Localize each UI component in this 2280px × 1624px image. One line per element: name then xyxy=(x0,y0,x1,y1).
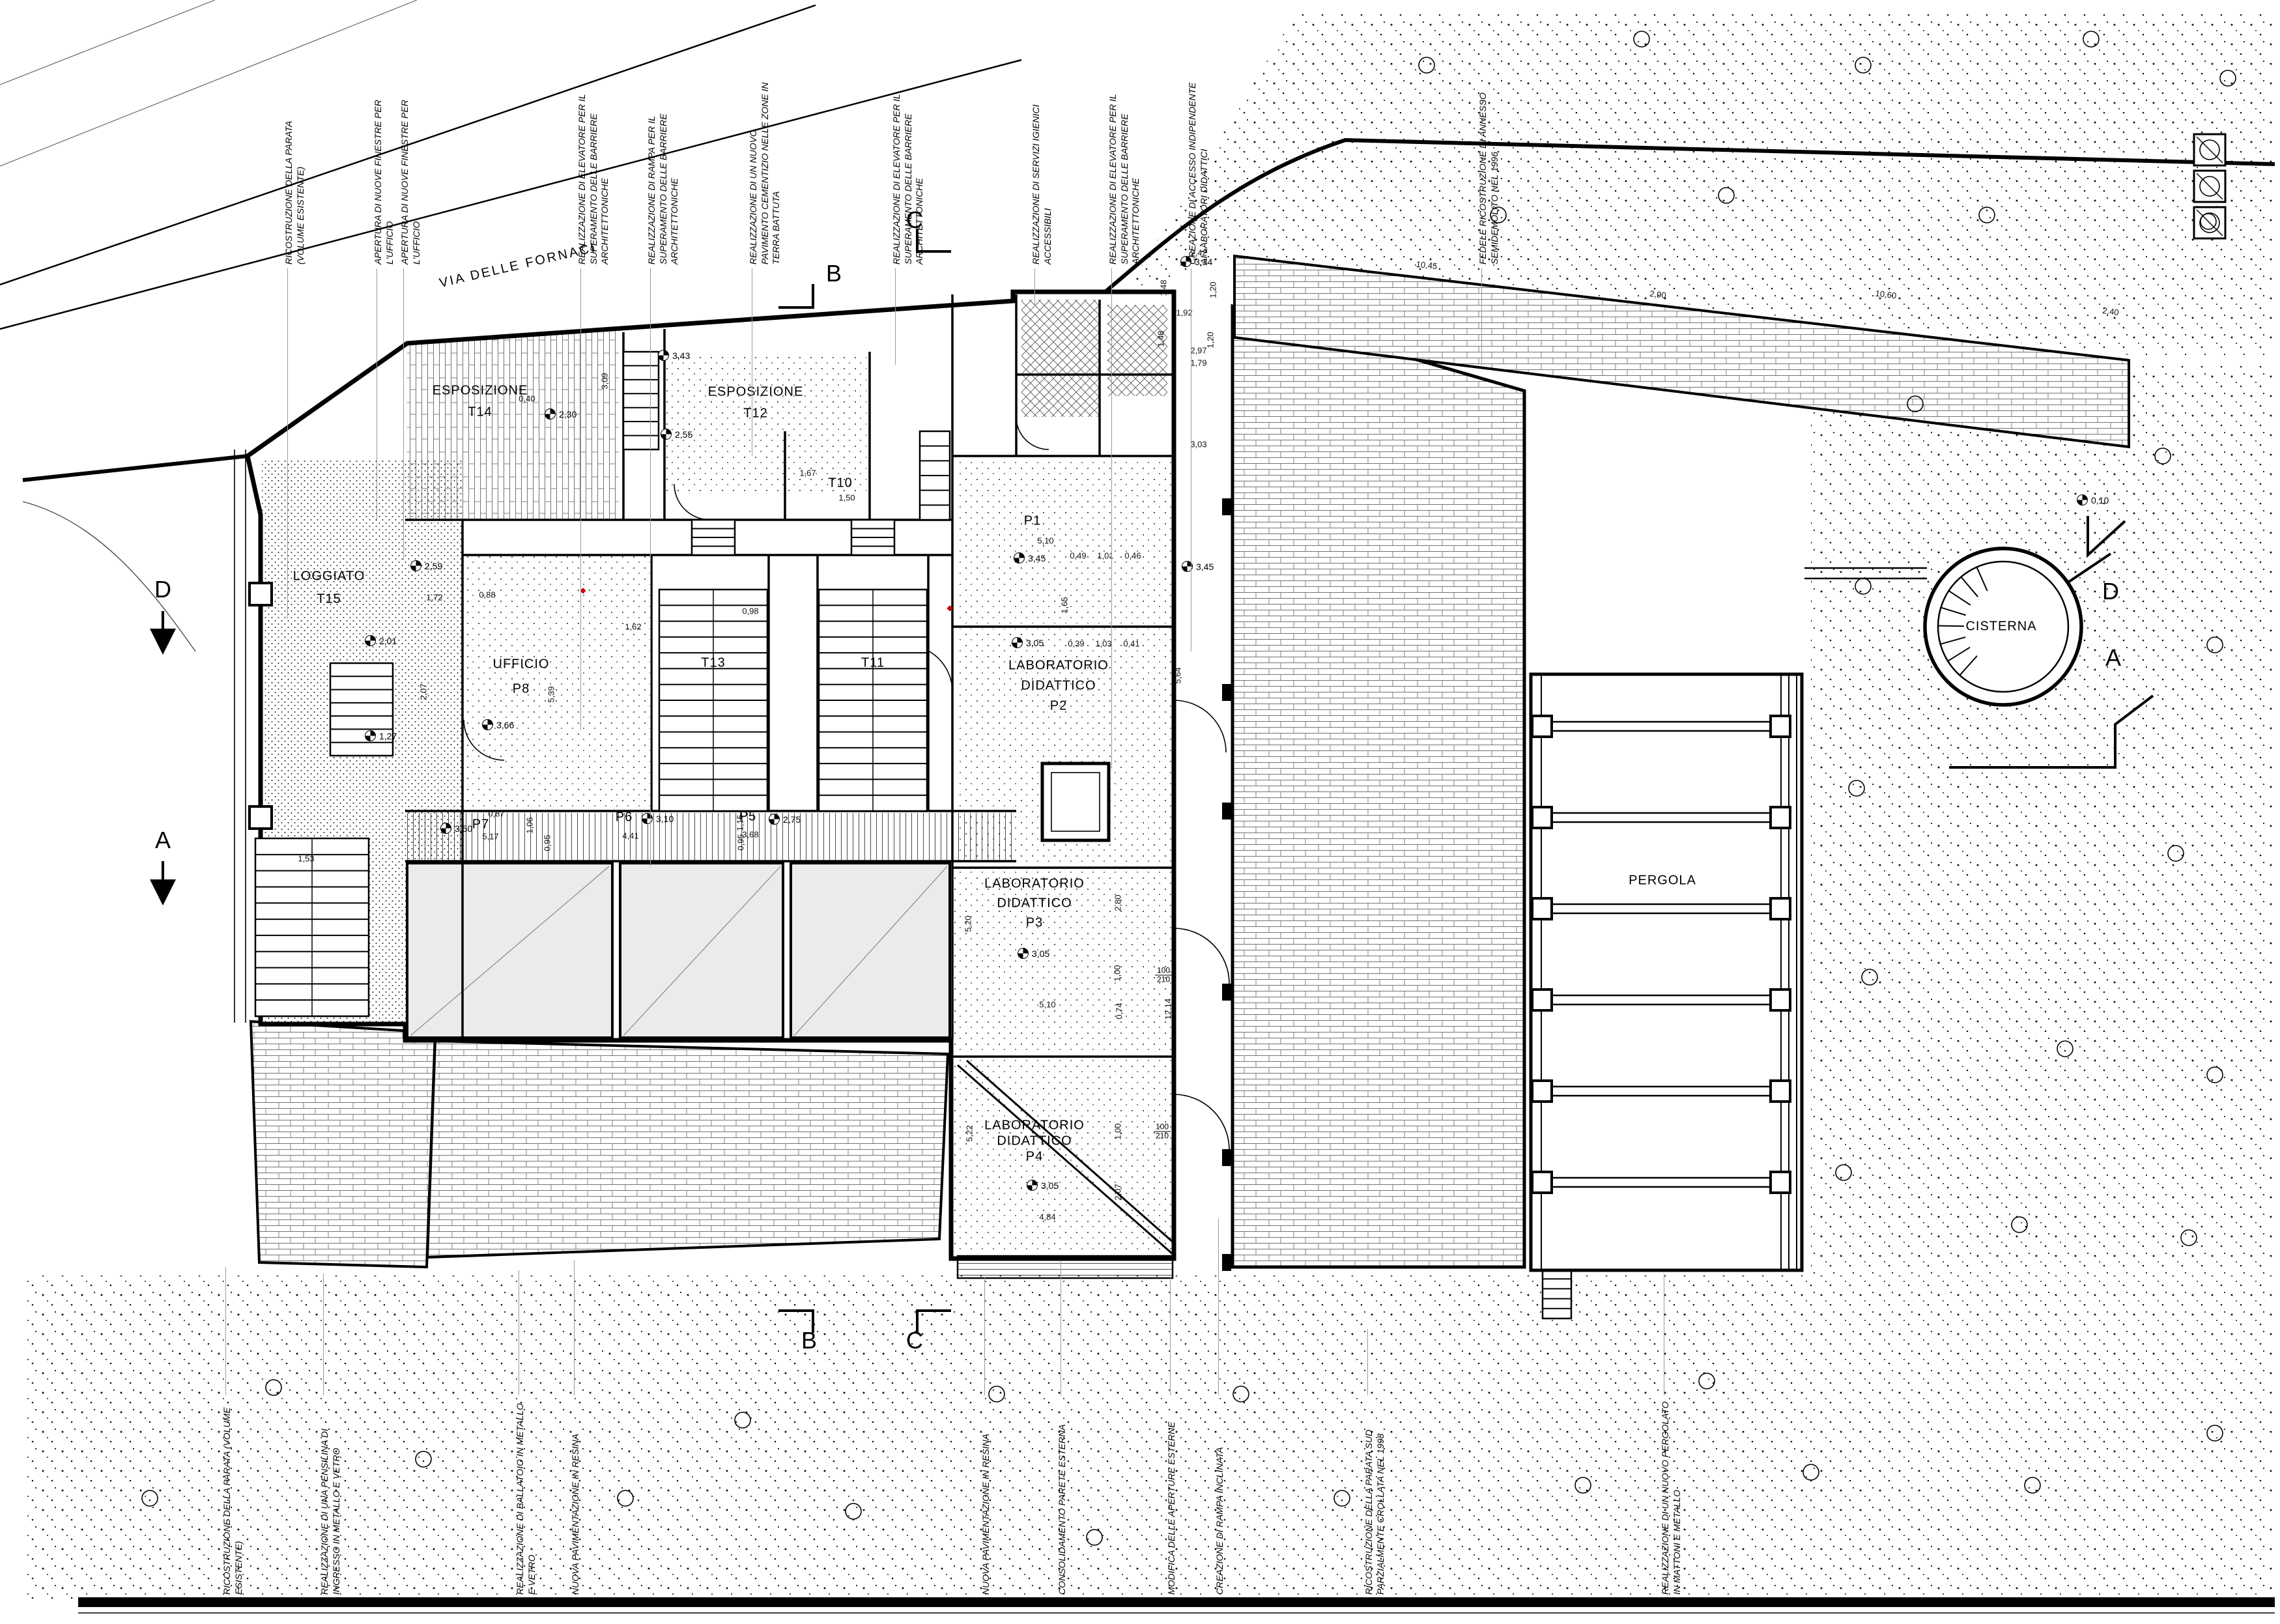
pergola-structure xyxy=(1531,674,1802,1270)
elevation-value: 3,43 xyxy=(672,350,690,361)
elevation-target-icon xyxy=(1012,637,1023,648)
elevation-value: 2,30 xyxy=(559,409,577,420)
dimension-label: 1,92 xyxy=(1176,308,1192,318)
spot-elevation: 0,10 xyxy=(2077,494,2109,506)
south-wall xyxy=(78,1597,2275,1613)
annotation-leader xyxy=(650,268,651,866)
revision-mark: ◆ xyxy=(947,603,952,612)
room-label: DIDATTICO xyxy=(1021,679,1096,694)
dimension-label: 1,00 xyxy=(1113,1123,1123,1139)
spot-elevation: 2,30 xyxy=(545,408,577,420)
door-jamb xyxy=(1222,684,1231,701)
dimension-label: 3,03 xyxy=(1190,440,1206,449)
annotation-leader xyxy=(1664,1274,1664,1395)
annotation-leader xyxy=(1218,1218,1219,1395)
annotation-callout: REALIZZAZIONE DI UNA PENSILINA DI INGRES… xyxy=(319,1399,342,1595)
elevation-target-icon xyxy=(365,635,376,646)
pergola-post xyxy=(1532,898,1552,919)
elevation-target-icon xyxy=(410,560,421,571)
dimension-label: 1,65 xyxy=(1060,597,1070,613)
elevation-value: 1,27 xyxy=(379,731,397,741)
spot-elevation: 2,75 xyxy=(769,814,801,825)
elevation-target-icon xyxy=(440,823,451,834)
annotation-callout: REALIZZAZIONE DI BALLATOIO IN METALLO E … xyxy=(515,1399,537,1595)
annotation-leader xyxy=(225,1267,226,1395)
elevation-target-icon xyxy=(365,730,376,741)
annotation-leader xyxy=(1170,1277,1171,1395)
door-size-label: 100210 xyxy=(1155,967,1172,984)
annotation-leader xyxy=(323,1274,324,1395)
spot-elevation: 3,50 xyxy=(440,823,472,834)
spot-elevation: 3,43 xyxy=(658,350,690,361)
room-label: ESPOSIZIONE xyxy=(433,384,528,399)
equipment-squares xyxy=(2194,134,2225,238)
site-plan-sheet: VIA DELLE FORNACI ESPOSIZIONET14ESPOSIZI… xyxy=(0,0,2280,1624)
road-via-delle-fornaci xyxy=(0,0,1021,329)
staircase xyxy=(623,352,659,449)
dimension-label: 3,09 xyxy=(600,373,610,389)
door-width: 100 xyxy=(1154,1123,1171,1132)
staircase xyxy=(1543,1269,1571,1318)
annotation-leader xyxy=(519,1270,519,1395)
annotation-leader xyxy=(1367,1329,1368,1395)
section-marker-d: D xyxy=(2102,578,2119,605)
section-marker-b: B xyxy=(801,1327,817,1354)
door-width: 100 xyxy=(1155,967,1172,976)
dimension-label: 12,14 xyxy=(1163,999,1173,1020)
door-height: 210 xyxy=(1154,1132,1171,1141)
room-label: P3 xyxy=(1026,916,1043,931)
annotation-callout: REALIZZAZIONE DI UN NUOVO PAVIMENTO CEME… xyxy=(748,82,782,264)
annotation-callout: RICOSTRUZIONE DELLA PARATA (VOLUME ESIST… xyxy=(221,1399,244,1595)
dimension-label: 5,20 xyxy=(963,915,973,932)
room-label: T12 xyxy=(743,406,767,421)
dimension-label: 1,06 xyxy=(525,817,535,833)
dimension-label: 0,87 xyxy=(488,809,504,819)
annotation-leader xyxy=(403,268,404,560)
room-label: ESPOSIZIONE xyxy=(708,385,804,400)
staircase xyxy=(330,663,393,756)
spot-elevation: 2,59 xyxy=(410,560,442,571)
dimension-label: 0,95 xyxy=(736,834,746,850)
room-label: UFFICIO xyxy=(493,657,550,672)
annotation-callout: RICOSTRUZIONE DELLA PARATA (VOLUME ESIST… xyxy=(283,82,306,264)
dimension-label: 0,41 xyxy=(1123,639,1139,649)
elevation-value: 2,59 xyxy=(425,561,442,571)
dimension-label: 1,00 xyxy=(1113,965,1122,981)
dimension-label: 1,79 xyxy=(1190,358,1206,368)
staircase xyxy=(920,431,950,520)
dimension-label: 0,88 xyxy=(479,590,495,600)
existing-rooms xyxy=(407,863,950,1038)
pergola-post xyxy=(1771,1172,1790,1193)
spot-elevation: 3,10 xyxy=(642,813,674,824)
elevation-target-icon xyxy=(661,429,672,440)
dimension-label: 0,98 xyxy=(742,606,758,616)
annotation-leader xyxy=(574,1261,575,1395)
elevation-value: 3,10 xyxy=(656,814,674,824)
dimension-label: 5,17 xyxy=(482,832,498,842)
annotation-leader xyxy=(580,268,581,730)
pergola-post xyxy=(1771,716,1790,737)
elevation-value: 0,10 xyxy=(2091,495,2109,506)
annotation-callout: APERTURA DI NUOVE FINESTRE PER L'UFFICIO xyxy=(373,82,395,264)
annotation-callout: CREAZIONE DI ACCESSO INDIPENDENTE AI LAB… xyxy=(1187,82,1210,264)
pergola-post xyxy=(1532,807,1552,828)
room-label: T11 xyxy=(861,656,885,671)
door-height: 210 xyxy=(1155,976,1172,984)
room-label: LABORATORIO xyxy=(984,1118,1085,1133)
dimension-label: 1,50 xyxy=(838,493,855,503)
dimension-label: 2,90 xyxy=(1649,289,1667,300)
annotation-callout: NUOVA PAVIMENTAZIONE IN RESINA xyxy=(980,1399,992,1595)
dimension-label: 5,10 xyxy=(1039,1000,1055,1010)
dimension-label: 1,62 xyxy=(625,622,641,632)
dimension-label: 2,07 xyxy=(419,683,429,700)
dimension-label: 2,80 xyxy=(1113,894,1123,911)
annotation-leader xyxy=(1481,268,1482,365)
elevation-target-icon xyxy=(2077,494,2088,506)
room-label: T14 xyxy=(468,405,492,420)
spot-elevation: 2,01 xyxy=(365,635,397,646)
dimension-label: 1,03 xyxy=(1095,639,1111,649)
elevation-value: 3,66 xyxy=(496,720,514,730)
room-label: P8 xyxy=(513,682,530,697)
spot-elevation: 2,55 xyxy=(661,429,692,440)
dimension-label: 1,72 xyxy=(426,593,442,603)
dimension-label: 4,41 xyxy=(622,831,638,841)
staircase xyxy=(659,590,767,811)
annotation-leader xyxy=(895,268,896,365)
door-jamb xyxy=(1222,1149,1231,1166)
door-jamb xyxy=(1222,803,1231,819)
dimension-label: 5,39 xyxy=(547,686,556,702)
annotation-callout: REALIZZAZIONE DI SERVIZI IGIENICI ACCESS… xyxy=(1031,82,1053,264)
dimension-label: 2,07 xyxy=(1113,1184,1123,1200)
dimension-label: 5,22 xyxy=(965,1125,975,1141)
room-label: T15 xyxy=(317,592,341,607)
elevation-value: 3,05 xyxy=(1026,638,1044,648)
room-label: T13 xyxy=(701,656,725,671)
dimension-label: 1,20 xyxy=(1206,332,1216,348)
dimension-label: 5,64 xyxy=(1173,667,1183,683)
elevation-value: 3,05 xyxy=(1041,1180,1059,1191)
spot-elevation: 3,45 xyxy=(1014,552,1046,563)
spot-elevation: 3,05 xyxy=(1012,637,1044,648)
elevation-value: 3,45 xyxy=(1028,553,1046,563)
elevator-shaft xyxy=(1042,763,1109,840)
pergola-post xyxy=(1532,1081,1552,1102)
dimension-label: 4,84 xyxy=(1039,1212,1055,1222)
dimension-label: 0,49 xyxy=(1070,551,1086,561)
elevation-target-icon xyxy=(1027,1180,1038,1191)
dimension-label: 1,15 xyxy=(735,814,745,831)
elevation-target-icon xyxy=(545,408,556,420)
dimension-label: 0,46 xyxy=(1124,551,1141,561)
section-marker-a: A xyxy=(2105,644,2121,672)
annotation-leader xyxy=(1034,268,1035,306)
annotation-callout: REALIZZAZIONE DI ELEVATORE PER IL SUPERA… xyxy=(1107,82,1142,264)
annotation-leader xyxy=(377,268,377,521)
dimension-label: 0,40 xyxy=(519,394,535,404)
room-label: DIDATTICO xyxy=(997,896,1072,911)
room-label: CISTERNA xyxy=(1965,620,2036,634)
elevation-value: 3,05 xyxy=(1032,948,1049,959)
elevation-target-icon xyxy=(1014,552,1025,563)
annotation-callout: REALIZZAZIONE DI RAMPA PER IL SUPERAMENT… xyxy=(646,82,681,264)
annotation-leader xyxy=(1061,1261,1061,1395)
annotation-leader xyxy=(287,268,288,619)
annotation-callout: MODIFICA DELLE APERTURE ESTERNE xyxy=(1166,1399,1178,1595)
room-label: P6 xyxy=(616,810,633,825)
annotation-callout: REALIZZAZIONE DI UN NUOVO PERGOLATO IN M… xyxy=(1660,1399,1683,1595)
dimension-label: 0,74 xyxy=(1115,1003,1124,1019)
room-label: PERGOLA xyxy=(1629,874,1696,889)
section-marker-a: A xyxy=(155,827,171,854)
door-jamb xyxy=(1222,984,1231,1001)
elevation-value: 3,50 xyxy=(455,823,472,834)
elevation-target-icon xyxy=(769,814,780,825)
pergola-post xyxy=(1771,990,1790,1010)
room-label: LABORATORIO xyxy=(984,877,1085,892)
annotation-leader xyxy=(1111,268,1112,769)
elevation-target-icon xyxy=(658,350,669,361)
annotation-callout: REALIZZAZIONE DI ELEVATORE PER IL SUPERA… xyxy=(891,82,926,264)
dimension-label: 1,53 xyxy=(298,854,314,864)
section-marker-c: C xyxy=(906,1327,923,1354)
pergola-post xyxy=(1771,807,1790,828)
dimension-label: 1,67 xyxy=(799,468,816,478)
pergola-post xyxy=(1532,716,1552,737)
elevation-value: 3,45 xyxy=(1196,562,1214,572)
room-label: LABORATORIO xyxy=(1008,659,1109,674)
dimension-label: 2,97 xyxy=(1190,346,1206,356)
spot-elevation: 3,45 xyxy=(1182,561,1214,572)
room-label: P7 xyxy=(472,818,489,833)
section-marker-b: B xyxy=(826,260,842,287)
door-jamb xyxy=(1222,498,1231,515)
elevation-value: 2,55 xyxy=(675,429,692,440)
door-size-label: 100210 xyxy=(1154,1123,1171,1141)
door-jamb xyxy=(1222,1254,1231,1271)
pergola-post xyxy=(1771,898,1790,919)
spot-elevation: 3,66 xyxy=(482,719,514,730)
spot-elevation: 3,05 xyxy=(1027,1180,1059,1191)
annotation-callout: RICOSTRUZIONE DELLA PARATA SUD PARZIALME… xyxy=(1363,1399,1386,1595)
annotation-leader xyxy=(1191,268,1191,651)
staircase xyxy=(692,520,735,555)
room-label: DIDATTICO xyxy=(997,1134,1072,1149)
spot-elevation: 3,05 xyxy=(1018,948,1049,959)
elevation-target-icon xyxy=(642,813,653,824)
elevation-target-icon xyxy=(1018,948,1029,959)
elevation-value: 2,01 xyxy=(379,636,397,646)
dimension-label: 0,95 xyxy=(543,834,552,851)
annotation-callout: NUOVA PAVIMENTAZIONE IN RESINA xyxy=(570,1399,582,1595)
elevation-target-icon xyxy=(482,719,493,730)
dimension-label: 0,39 xyxy=(1068,639,1084,649)
staircase xyxy=(851,520,894,555)
room-label: P2 xyxy=(1050,699,1067,714)
dimension-label: 1,48 xyxy=(1159,279,1169,296)
spot-elevation: 1,27 xyxy=(365,730,397,741)
annotation-leader xyxy=(984,1277,985,1395)
staircase xyxy=(255,838,369,1016)
staircase xyxy=(819,590,927,811)
annotation-leader xyxy=(752,268,752,456)
annotation-callout: CREAZIONE DI RAMPA INCLINATA xyxy=(1214,1399,1226,1595)
elevation-value: 2,75 xyxy=(783,814,801,825)
pergola-post xyxy=(1532,990,1552,1010)
annotation-callout: APERTURA DI NUOVE FINESTRE PER L'UFFICIO xyxy=(399,82,422,264)
room-label: T10 xyxy=(828,476,852,491)
courtyard-paving xyxy=(1233,306,1524,1267)
room-label: P1 xyxy=(1024,514,1041,529)
annotation-callout: REALIZZAZIONE DI ELEVATORE PER IL SUPERA… xyxy=(577,82,611,264)
south-terraces xyxy=(251,1021,948,1267)
annotation-callout: CONSOLIDAMENTO PARETE ESTERNA xyxy=(1057,1399,1068,1595)
room-label: P4 xyxy=(1026,1150,1043,1165)
pergola-post xyxy=(1532,1172,1552,1193)
annotation-callout: FEDELE RICOSTRUZIONE DI ANNESSO SEMIDEMO… xyxy=(1477,82,1500,264)
dimension-label: 1,48 xyxy=(1156,330,1166,347)
section-marker-d: D xyxy=(154,576,171,603)
pergola-post xyxy=(1771,1081,1790,1102)
room-label: LOGGIATO xyxy=(293,569,365,584)
dimension-label: 5,10 xyxy=(1037,536,1053,546)
dimension-label: 1,20 xyxy=(1208,281,1218,298)
